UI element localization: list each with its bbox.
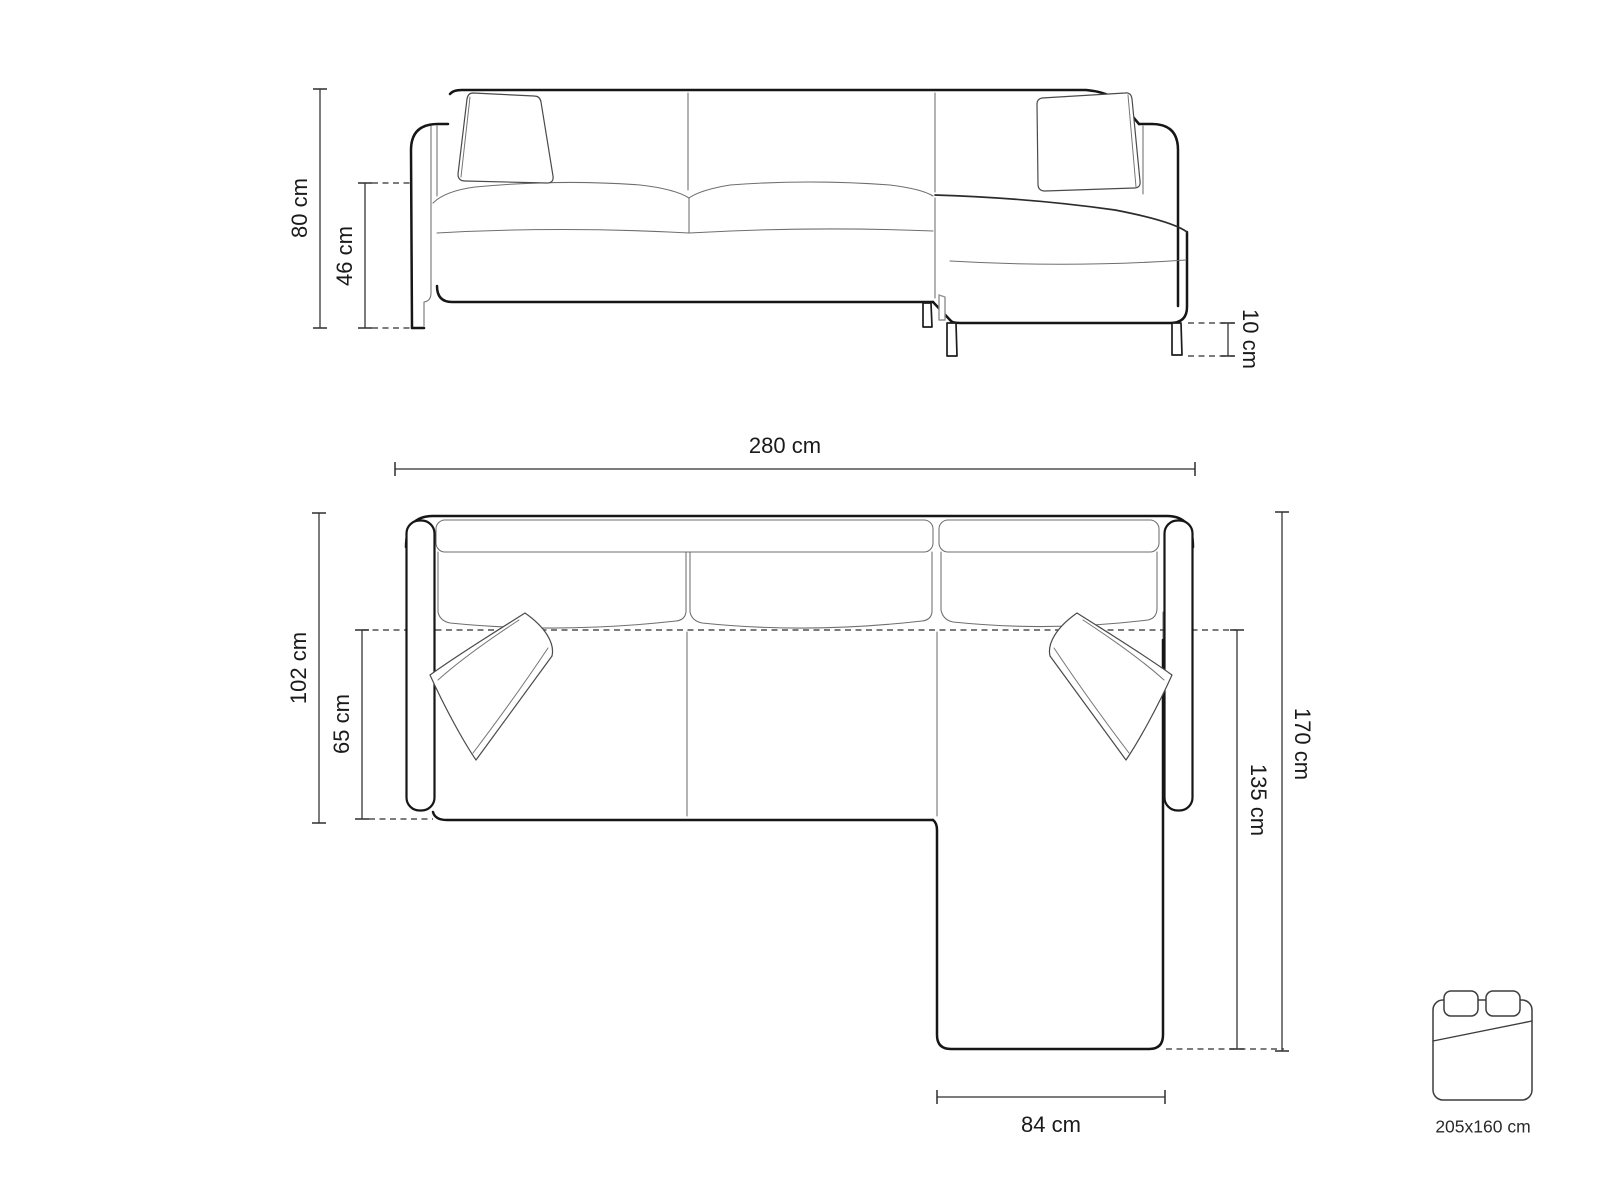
front-seat-top-2	[689, 182, 933, 198]
front-backrest-top	[450, 90, 1139, 124]
dim-front-seat-height: 46 cm	[332, 183, 410, 328]
front-chaise-bottom	[951, 232, 1187, 323]
front-left-arm	[411, 124, 448, 328]
top-back-cushion-1	[438, 552, 686, 628]
front-chaise-seat-underline	[950, 260, 1186, 264]
front-leg-hidden	[939, 295, 945, 320]
top-back-cushion-3	[941, 552, 1157, 627]
top-backrest-band-1	[436, 520, 933, 552]
dim-label-chaise-length: 135 cm	[1246, 764, 1271, 836]
top-front-edge	[433, 812, 933, 820]
front-left-pillow	[458, 93, 553, 183]
top-right-arm	[1165, 521, 1193, 811]
dim-label-seat-height: 46 cm	[332, 226, 357, 286]
top-backrest-band-2	[939, 520, 1159, 552]
front-leg-chaise	[947, 323, 957, 356]
dim-top-total-width: 280 cm	[395, 433, 1195, 476]
dim-label-total-depth: 102 cm	[286, 632, 311, 704]
top-back-edge	[406, 516, 1193, 547]
bed-pillow-left	[1444, 991, 1478, 1016]
front-left-arm-inner	[424, 126, 431, 326]
front-leg-back-middle	[923, 303, 932, 327]
front-chaise-seat-top	[935, 195, 1187, 232]
front-seat-bottom-2	[689, 229, 933, 233]
diagram-svg: 80 cm 46 cm 10 cm 280 cm	[0, 0, 1600, 1200]
dim-front-total-height: 80 cm	[287, 89, 327, 328]
front-body-bottom	[437, 286, 933, 302]
bed-icon: 205x160 cm	[1433, 991, 1532, 1137]
top-left-arm	[407, 521, 435, 811]
front-right-arm	[1139, 124, 1178, 306]
dim-label-total-width: 280 cm	[749, 433, 821, 458]
dim-front-leg-height: 10 cm	[1188, 309, 1263, 369]
dim-top-total-depth: 102 cm	[286, 513, 326, 823]
dim-label-chaise-width: 84 cm	[1021, 1112, 1081, 1137]
sofa-front-view: 80 cm 46 cm 10 cm	[287, 89, 1263, 369]
dim-label-seat-depth: 65 cm	[329, 694, 354, 754]
front-seat-top-1	[433, 182, 689, 203]
bed-size-label: 205x160 cm	[1435, 1117, 1530, 1137]
front-seat-bottom-1	[437, 230, 689, 234]
top-right-pillow	[1049, 613, 1172, 760]
top-back-cushion-2	[690, 552, 932, 628]
sofa-top-view: 280 cm	[286, 433, 1315, 1137]
dim-top-chaise-overall: 170 cm	[1275, 512, 1315, 1051]
front-right-pillow	[1037, 93, 1140, 191]
dimension-diagram: 80 cm 46 cm 10 cm 280 cm	[0, 0, 1600, 1200]
dim-label-total-height: 80 cm	[287, 178, 312, 238]
front-leg-right	[1172, 323, 1182, 355]
dim-top-chaise-width: 84 cm	[937, 1090, 1165, 1137]
top-left-pillow	[430, 613, 553, 760]
dim-label-chaise-overall: 170 cm	[1290, 708, 1315, 780]
bed-pillow-right	[1486, 991, 1520, 1016]
dim-label-leg-height: 10 cm	[1238, 309, 1263, 369]
